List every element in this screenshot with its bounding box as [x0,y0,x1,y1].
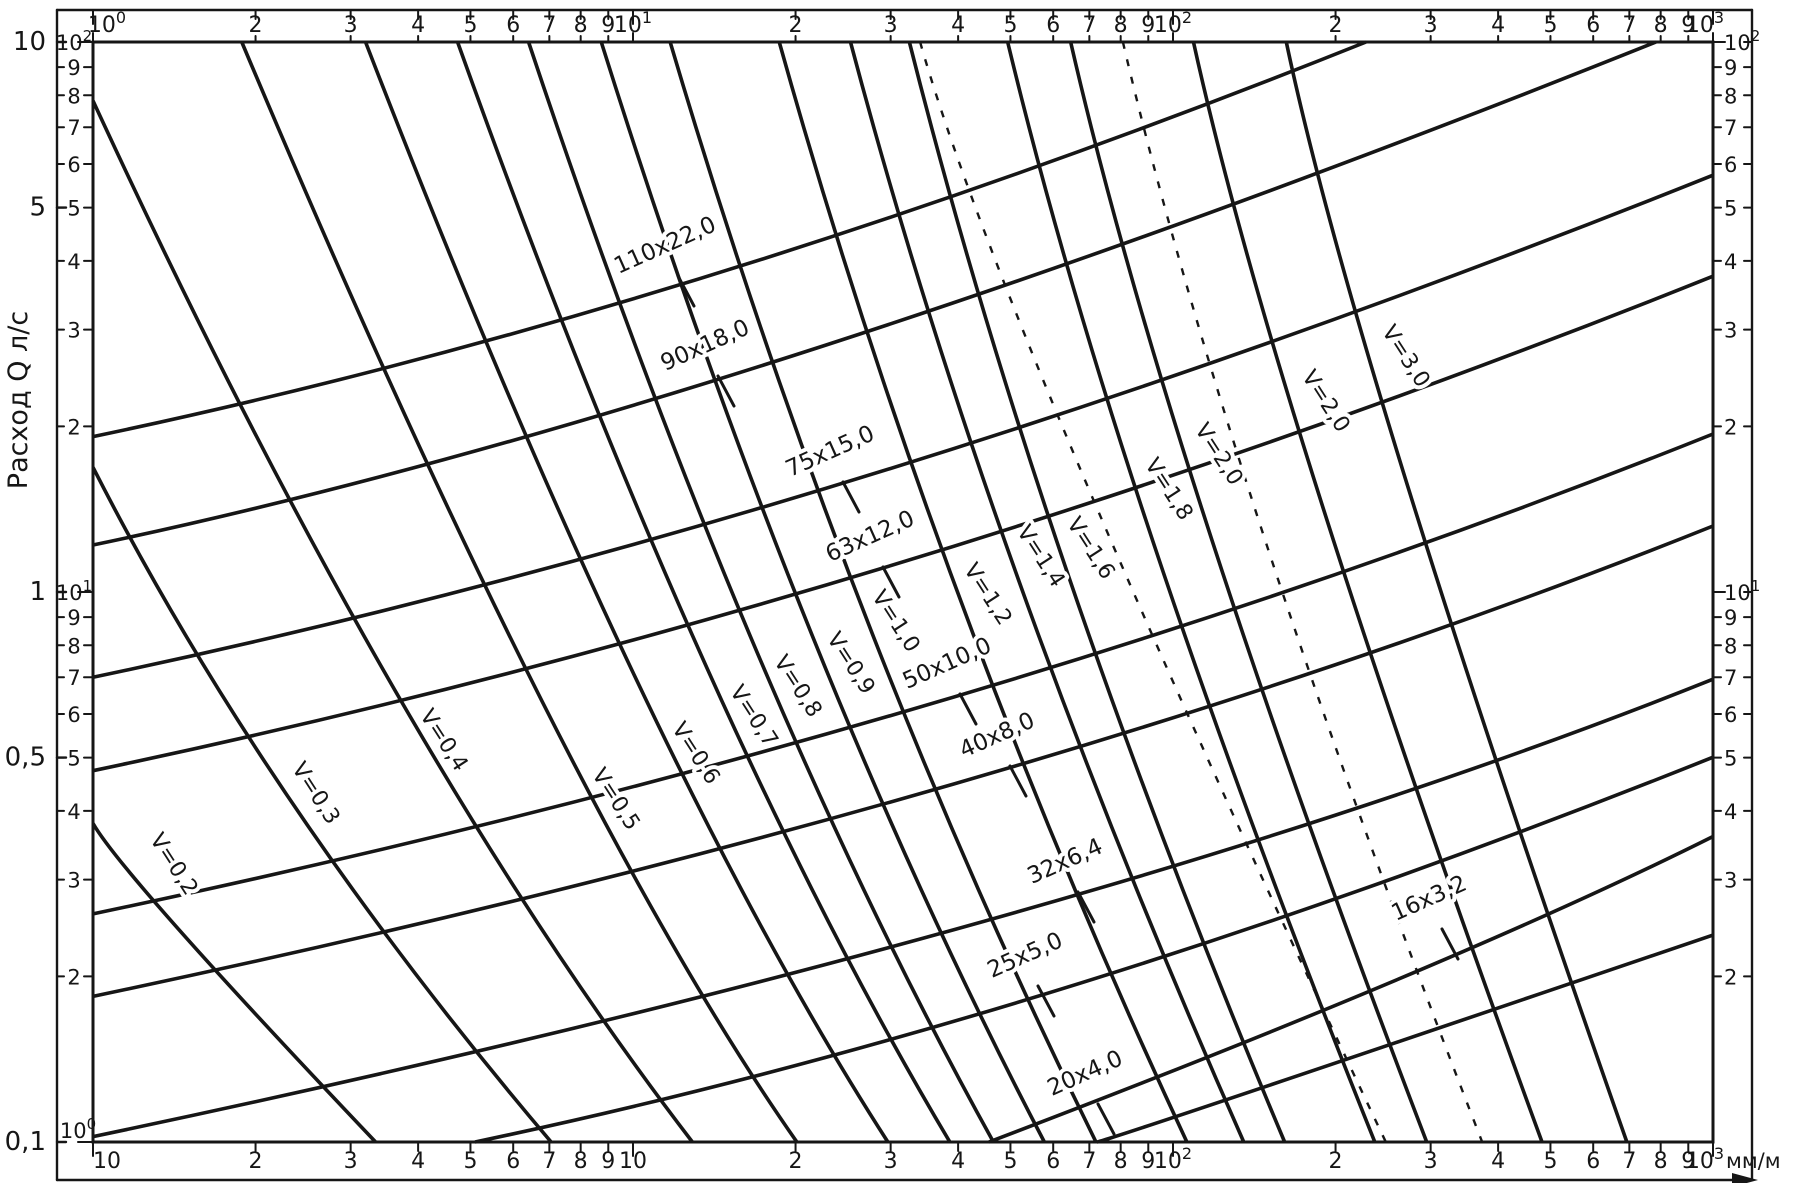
left-axis-tick-label: 6 [67,153,80,177]
bottom-axis-tick-label: 7 [542,1149,556,1174]
top-axis-tick-label: 3 [1424,13,1438,38]
bottom-axis-tick-label: 3 [1424,1149,1438,1174]
flow-scale-label: 0,5 [5,743,46,773]
left-axis-tick-label: 2 [67,415,80,439]
right-axis-tick-label: 102 [1724,27,1760,55]
bottom-axis-tick-label: 103 [1686,1144,1724,1174]
top-axis-tick-label: 7 [1622,13,1636,38]
bottom-axis-tick-label: 102 [1154,1144,1192,1174]
top-axis-tick-label: 6 [506,13,520,38]
bottom-axis-tick-label: 2 [789,1149,803,1174]
pipe-label-leader [843,482,859,512]
left-axis-tick-label: 7 [67,666,80,690]
bottom-axis-tick-label: 4 [1491,1149,1505,1174]
top-axis-tick-label: 3 [884,13,898,38]
right-axis-tick-label: 5 [1724,197,1737,221]
bottom-axis-tick-label: 2 [249,1149,263,1174]
top-axis-tick-label: 7 [542,13,556,38]
pipe-line [1097,935,1713,1142]
left-axis-tick-label: 5 [67,747,80,771]
bottom-axis-tick-label: 6 [1046,1149,1060,1174]
velocity-line-label: V=0,5 [586,764,644,835]
velocity-line-label: V=0,3 [286,758,344,829]
right-axis-tick-label: 8 [1724,634,1737,658]
top-axis-tick-label: 4 [411,13,425,38]
top-axis-tick-label: 7 [1082,13,1096,38]
bottom-axis-tick-label: 9 [601,1149,615,1174]
bottom-axis-tick-label: 10 [93,1149,121,1174]
right-axis-tick-label: 7 [1724,116,1737,140]
bottom-axis-tick-label: 7 [1622,1149,1636,1174]
top-axis-tick-label: 5 [1543,13,1557,38]
nomogram-chart: 1001022334455667788991011022334455667788… [0,0,1813,1183]
velocity-line [366,42,888,1142]
top-axis-tick-label: 4 [1491,13,1505,38]
left-axis-tick-label: 8 [67,84,80,108]
bottom-axis-tick-label: 4 [411,1149,425,1174]
velocity-line-label: V=1,6 [1061,513,1119,584]
bottom-axis-tick-label: 7 [1082,1149,1096,1174]
top-axis-tick-label: 3 [344,13,358,38]
right-axis-tick-label: 101 [1724,577,1760,605]
bottom-axis-tick-label: 3 [344,1149,358,1174]
pipe-line-label: 16x3,2 [1388,871,1471,927]
bottom-axis-tick-label: 3 [884,1149,898,1174]
pipe-label-leader [1098,1104,1114,1134]
top-axis-tick-label: 103 [1686,8,1724,38]
right-axis-tick-label: 9 [1724,606,1737,630]
pipe-line-label: 90x18,0 [657,315,754,377]
velocity-line [93,823,376,1142]
left-axis-tick-label: 6 [67,703,80,727]
left-axis-tick-label: 100 [60,1115,96,1143]
top-axis-tick-label: 6 [1046,13,1060,38]
pipe-label-leader [960,694,976,724]
top-axis-tick-label: 100 [88,8,126,38]
top-axis-tick-label: 2 [789,13,803,38]
velocity-line [458,42,950,1142]
bottom-axis-tick-label: 8 [1654,1149,1668,1174]
left-axis-tick-label: 3 [67,319,80,343]
velocity-line-label: V=3,0 [1376,321,1434,392]
pipe-label-leader [1010,766,1026,796]
left-axis-tick-label: 4 [67,800,80,824]
bottom-axis-tick-label: 4 [951,1149,965,1174]
right-axis-tick-label: 2 [1724,965,1737,989]
pipe-line [475,757,1713,1142]
x-axis-arrow-icon [1732,1173,1758,1183]
velocity-line-label: V=0,9 [821,628,879,699]
right-axis-tick-label: 9 [1724,56,1737,80]
pipe-line-label: 63x12,0 [822,506,919,568]
top-axis-tick-label: 8 [1114,13,1128,38]
pipe-line [989,837,1713,1143]
flow-scale-label: 5 [29,193,46,223]
left-axis-tick-label: 2 [67,965,80,989]
pipe-line-label: 32x6,4 [1024,834,1107,890]
pipe-line [93,679,1713,1136]
right-axis-tick-label: 8 [1724,84,1737,108]
top-axis-tick-label: 8 [1654,13,1668,38]
flow-scale-label: 0,1 [5,1127,46,1157]
top-axis-tick-label: 101 [614,8,652,38]
right-axis-tick-label: 4 [1724,250,1737,274]
top-axis-tick-label: 5 [1003,13,1017,38]
left-axis-tick-label: 5 [67,197,80,221]
flow-scale-label: 10 [13,27,46,57]
bottom-axis-tick-label: 5 [1543,1149,1557,1174]
right-axis-tick-label: 6 [1724,153,1737,177]
bottom-axis-tick-label: 6 [506,1149,520,1174]
bottom-axis-tick-label: 5 [463,1149,477,1174]
pipe-line [93,175,1713,677]
bottom-axis-tick-label: 2 [1329,1149,1343,1174]
velocity-line-label: V=0,2 [144,829,202,900]
plot-border [93,42,1713,1142]
pipe-line [93,42,1656,545]
bottom-axis-tick-label: 5 [1003,1149,1017,1174]
y-axis-title: Расход Q л/с [3,311,34,489]
right-axis-tick-label: 6 [1724,703,1737,727]
nomogram-svg: 1001022334455667788991011022334455667788… [0,0,1813,1183]
bottom-axis-tick-label: 8 [574,1149,588,1174]
right-axis-tick-label: 3 [1724,869,1737,893]
velocity-line [1008,42,1375,1142]
top-axis-tick-label: 2 [249,13,263,38]
top-axis-tick-label: 8 [574,13,588,38]
bottom-axis-tick-label: 8 [1114,1149,1128,1174]
left-axis-tick-label: 8 [67,634,80,658]
pipe-label-leader [1442,929,1458,959]
velocity-line [850,42,1243,1142]
bottom-axis-tick-label: 10 [619,1149,647,1174]
x-axis-unit-label: мм/м [1726,1149,1781,1173]
velocity-line-dashed [1123,42,1482,1142]
top-axis-tick-label: 6 [1586,13,1600,38]
right-axis-tick-label: 5 [1724,747,1737,771]
velocity-line-label: V=2,0 [1296,366,1354,437]
velocity-line [1071,42,1427,1142]
top-axis-tick-label: 4 [951,13,965,38]
left-axis-tick-label: 7 [67,116,80,140]
top-axis-tick-label: 2 [1329,13,1343,38]
left-axis-tick-label: 4 [67,250,80,274]
left-axis-tick-label: 9 [67,56,80,80]
pipe-line-label: 110x22,0 [610,212,720,280]
bottom-axis-tick-label: 6 [1586,1149,1600,1174]
pipe-line [93,526,1713,996]
right-axis-tick-label: 7 [1724,666,1737,690]
top-axis-tick-label: 102 [1154,8,1192,38]
left-axis-tick-label: 3 [67,869,80,893]
left-axis-tick-label: 9 [67,606,80,630]
velocity-line-label: V=0,6 [666,718,724,789]
pipe-line-label: 25x5,0 [984,928,1067,984]
velocity-line-label: V=1,0 [866,586,924,657]
velocity-line-label: V=0,8 [768,651,826,722]
pipe-line-label: 40x8,0 [956,708,1039,764]
right-axis-tick-label: 4 [1724,800,1737,824]
velocity-line [1286,42,1627,1142]
top-axis-tick-label: 5 [463,13,477,38]
right-axis-tick-label: 3 [1724,319,1737,343]
flow-scale-label: 1 [29,577,46,607]
velocity-line [1193,42,1542,1142]
right-axis-tick-label: 2 [1724,415,1737,439]
